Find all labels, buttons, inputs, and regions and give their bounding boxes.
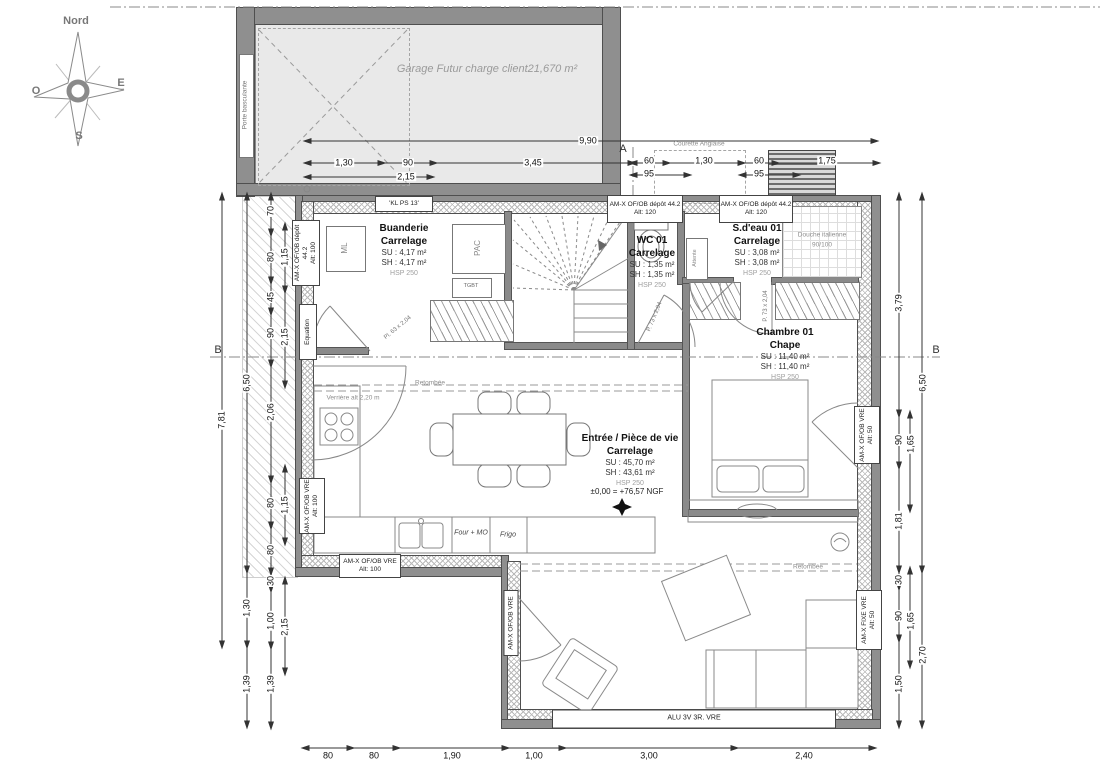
compass-north-label: Nord [63, 16, 89, 28]
heat-pump-label: PAC [474, 240, 482, 256]
opening-alt: Alt: 100 [312, 495, 320, 517]
opening-text: AM-X OF/OB VRE [304, 479, 312, 532]
room-label-buanderie: Buanderie Carrelage SU : 4,17 m² SH : 4,… [380, 222, 429, 278]
section-a-marker: A [619, 144, 626, 156]
retombee-label-1: Retombée [415, 381, 445, 388]
dim-label: 6,50 [918, 373, 927, 393]
dim-label: 30 [266, 575, 275, 587]
dim-label: 1,90 [442, 751, 462, 760]
room-su: SU : 11,40 m² [756, 352, 813, 362]
room-label-sejour: Entrée / Pièce de vie Carrelage SU : 45,… [582, 432, 679, 488]
room-name: WC 01 [629, 234, 675, 247]
verriere-label: Verrière alt 2,20 m [326, 396, 379, 403]
oven-label: Four + MO [454, 529, 488, 536]
dim-label: 9,90 [578, 136, 598, 145]
compass-west-label: O [32, 86, 41, 98]
opening-text: ALU 3V 3R. VRE [667, 715, 720, 723]
room-name: S.d'eau 01 [732, 222, 781, 235]
opening-text: AM-X OF/OB VRE [507, 596, 515, 649]
dim-label: 2,15 [396, 172, 416, 181]
room-label-chambre: Chambre 01 Chape SU : 11,40 m² SH : 11,4… [756, 326, 813, 382]
window-label-right-1: AM-X OF/OB VRE Alt: 50 [854, 406, 880, 464]
dim-label: 95 [753, 169, 765, 178]
compass-icon [34, 32, 124, 146]
window-label-top-1: AM-X OF/OB dépôt 44.2 Alt: 120 [607, 195, 683, 223]
electric-panel-label: TGBT [464, 284, 479, 290]
garage-label: Garage Futur charge client21,670 m² [397, 64, 577, 76]
room-sh: SH : 11,40 m² [756, 362, 813, 372]
dim-label: 1,75 [817, 156, 837, 165]
room-sh: SH : 1,35 m² [629, 270, 675, 280]
dim-label: 90 [402, 158, 414, 167]
dim-label: 2,40 [794, 751, 814, 760]
room-su: SU : 45,70 m² [582, 458, 679, 468]
dim-label: 1,30 [694, 156, 714, 165]
dim-label: 2,15 [280, 327, 289, 347]
dim-label: 70 [266, 205, 275, 217]
level-marker-icon [612, 498, 632, 516]
dim-label: 80 [322, 751, 334, 760]
room-sh: SH : 4,17 m² [380, 258, 429, 268]
opening-text: 'KL PS 13' [389, 200, 419, 208]
dim-label: 6,50 [242, 373, 251, 393]
dim-label: 80 [266, 251, 275, 263]
dim-label: 1,00 [266, 611, 275, 631]
fridge-label: Frigo [500, 531, 516, 538]
compass-south-label: S [75, 131, 82, 143]
opening-alt: Alt: 100 [359, 566, 381, 574]
compass-east-label: E [117, 78, 124, 90]
room-su: SU : 4,17 m² [380, 248, 429, 258]
window-label-left-1: AM-X OF/OB dépôt 44.2 Alt: 100 [292, 220, 320, 286]
dim-label: 30 [894, 574, 903, 586]
dim-label: 3,00 [639, 751, 659, 760]
dim-label: 2,15 [280, 617, 289, 637]
floor-plan: Nord O E S Garage Futur charge client21,… [0, 0, 1103, 765]
bay-window-label: ALU 3V 3R. VRE [552, 710, 836, 729]
dim-label: 1,15 [280, 247, 289, 267]
dim-label: 1,65 [906, 611, 915, 631]
room-finish: Chape [756, 339, 813, 352]
dim-label: 80 [266, 544, 275, 556]
door-size-label-3: P. 73 x 2,04 [763, 290, 769, 321]
level-label: ±0,00 = +76,57 NGF [591, 488, 664, 496]
dim-label: 95 [643, 169, 655, 178]
opening-text: AM-X OF/OB dépôt 44.2 [721, 201, 792, 209]
room-name: Chambre 01 [756, 326, 813, 339]
dim-label: 80 [266, 497, 275, 509]
room-hsp: HSP 250 [732, 269, 781, 278]
opening-alt: Alt: 50 [867, 426, 875, 444]
dim-label: 1,39 [242, 674, 251, 694]
room-su: SU : 1,35 m² [629, 260, 675, 270]
attente-label: Attente [693, 249, 699, 266]
opening-text: AM-X OF/OB dépôt 44.2 [294, 221, 310, 285]
window-label-left-2: AM-X OF/OB VRE Alt: 100 [299, 478, 325, 534]
window-label-step: AM-X OF/OB VRE [504, 590, 519, 656]
shower-label-2: 90/100 [812, 243, 832, 250]
opening-text: Equation [304, 319, 312, 345]
room-hsp: HSP 250 [380, 269, 429, 278]
room-name: Entrée / Pièce de vie [582, 432, 679, 445]
washing-machine-label: ML [341, 242, 349, 253]
dim-label: 1,30 [242, 598, 251, 618]
room-name: Buanderie [380, 222, 429, 235]
dim-label: 1,00 [524, 751, 544, 760]
dim-label: 2,70 [918, 645, 927, 665]
dim-label: 3,45 [523, 158, 543, 167]
garage-door-label: Porte basculante [243, 81, 250, 130]
room-hsp: HSP 250 [629, 281, 675, 290]
room-finish: Carrelage [629, 247, 675, 260]
room-finish: Carrelage [732, 235, 781, 248]
dim-label: 90 [894, 610, 903, 622]
opening-text: AM-X OF/OB VRE [859, 408, 867, 461]
opening-text: AM-X FIXE VRE [861, 596, 869, 644]
opening-alt: Alt: 120 [634, 209, 656, 217]
dim-label: 1,39 [266, 674, 275, 694]
room-label-wc: WC 01 Carrelage SU : 1,35 m² SH : 1,35 m… [629, 234, 675, 290]
shower-label-1: Douche italienne [798, 233, 846, 240]
opening-text: AM-X OF/OB VRE [343, 558, 396, 566]
dim-label: 1,50 [894, 674, 903, 694]
dim-label: 45 [266, 291, 275, 303]
room-sh: SH : 43,61 m² [582, 468, 679, 478]
opening-alt: Alt: 120 [745, 209, 767, 217]
section-b-marker-left: B [214, 345, 221, 357]
room-label-sdeau: S.d'eau 01 Carrelage SU : 3,08 m² SH : 3… [732, 222, 781, 278]
window-label-wing: AM-X OF/OB VRE Alt: 100 [339, 554, 401, 578]
room-su: SU : 3,08 m² [732, 248, 781, 258]
dim-label: 90 [266, 327, 275, 339]
dim-label: 1,81 [894, 511, 903, 531]
retombee-label-2: Retombée [793, 565, 823, 572]
dim-label: 7,81 [217, 410, 226, 430]
courette-label: Courette Anglaise [673, 142, 724, 149]
section-b-marker-right: B [932, 345, 939, 357]
dim-label: 60 [753, 156, 765, 165]
dim-label: 1,15 [280, 495, 289, 515]
room-sh: SH : 3,08 m² [732, 258, 781, 268]
opening-alt: Alt: 100 [310, 242, 318, 264]
window-label-top-2: AM-X OF/OB dépôt 44.2 Alt: 120 [719, 195, 793, 223]
door-label-equation: Equation [299, 304, 317, 360]
room-finish: Carrelage [380, 235, 429, 248]
dim-label: 3,79 [894, 293, 903, 313]
dim-label: 1,65 [906, 434, 915, 454]
dim-label: 80 [368, 751, 380, 760]
room-hsp: HSP 250 [756, 373, 813, 382]
plan-linework [0, 0, 1103, 765]
dim-label: 90 [894, 434, 903, 446]
window-label-kl-ps13: 'KL PS 13' [375, 196, 433, 212]
window-label-right-2: AM-X FIXE VRE Alt: 50 [856, 590, 882, 650]
room-finish: Carrelage [582, 445, 679, 458]
opening-alt: Alt: 50 [869, 611, 877, 629]
dim-label: 1,30 [334, 158, 354, 167]
dim-label: 60 [643, 156, 655, 165]
dim-label: 2,06 [266, 402, 275, 422]
opening-text: AM-X OF/OB dépôt 44.2 [610, 201, 681, 209]
